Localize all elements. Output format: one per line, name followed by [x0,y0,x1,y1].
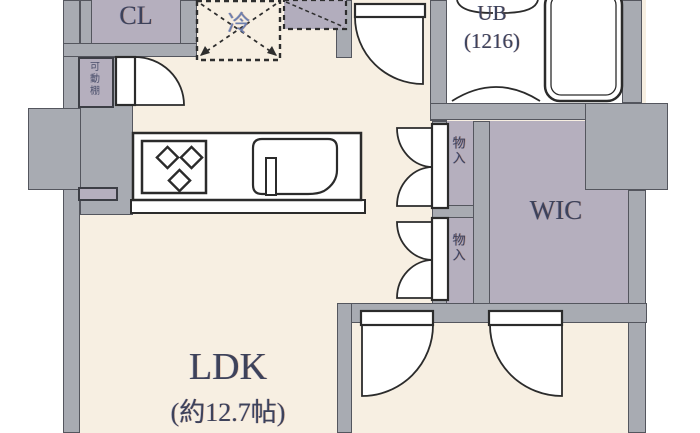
arrow-head [200,46,210,56]
door-leaf [432,124,448,208]
room-label-storage-lower: 物入 [451,233,465,263]
door-leaf [116,57,135,105]
room-label-storage-upper: 物入 [451,136,465,166]
room-label-shelf: 可動棚 [87,61,98,97]
room-label-ldk-size: (約12.7帖) [95,399,361,426]
bifold-door-icon [397,222,433,260]
counter-front-edge [131,200,365,213]
door-swing-icon [362,325,433,396]
door-swing-icon [355,17,423,84]
room-label-ub-size: (1216) [447,30,537,52]
bifold-door-icon [397,260,433,298]
room-label-ub: UB [447,2,537,24]
arrow-head [267,46,277,56]
door-leaf [355,4,425,17]
room-label-wic: WIC [490,196,622,224]
room-label-cl: CL [92,2,180,29]
bifold-door-icon [397,167,433,206]
door-swing-icon [490,325,562,396]
door-leaf [489,311,562,325]
door-leaf [432,218,448,300]
bathtub-icon [545,0,622,101]
faucet-icon [266,158,276,195]
fridge-label: 冷 [221,12,257,36]
door-leaf [361,311,433,325]
bath-door-arc [452,87,540,101]
room-label-ldk: LDK [130,348,326,388]
door-swing-icon [135,57,184,105]
bifold-door-icon [397,128,433,167]
floor-plan: CL 可動棚 冷 UB (1216) WIC 物入 物入 LDK (約12.7帖… [0,0,700,433]
